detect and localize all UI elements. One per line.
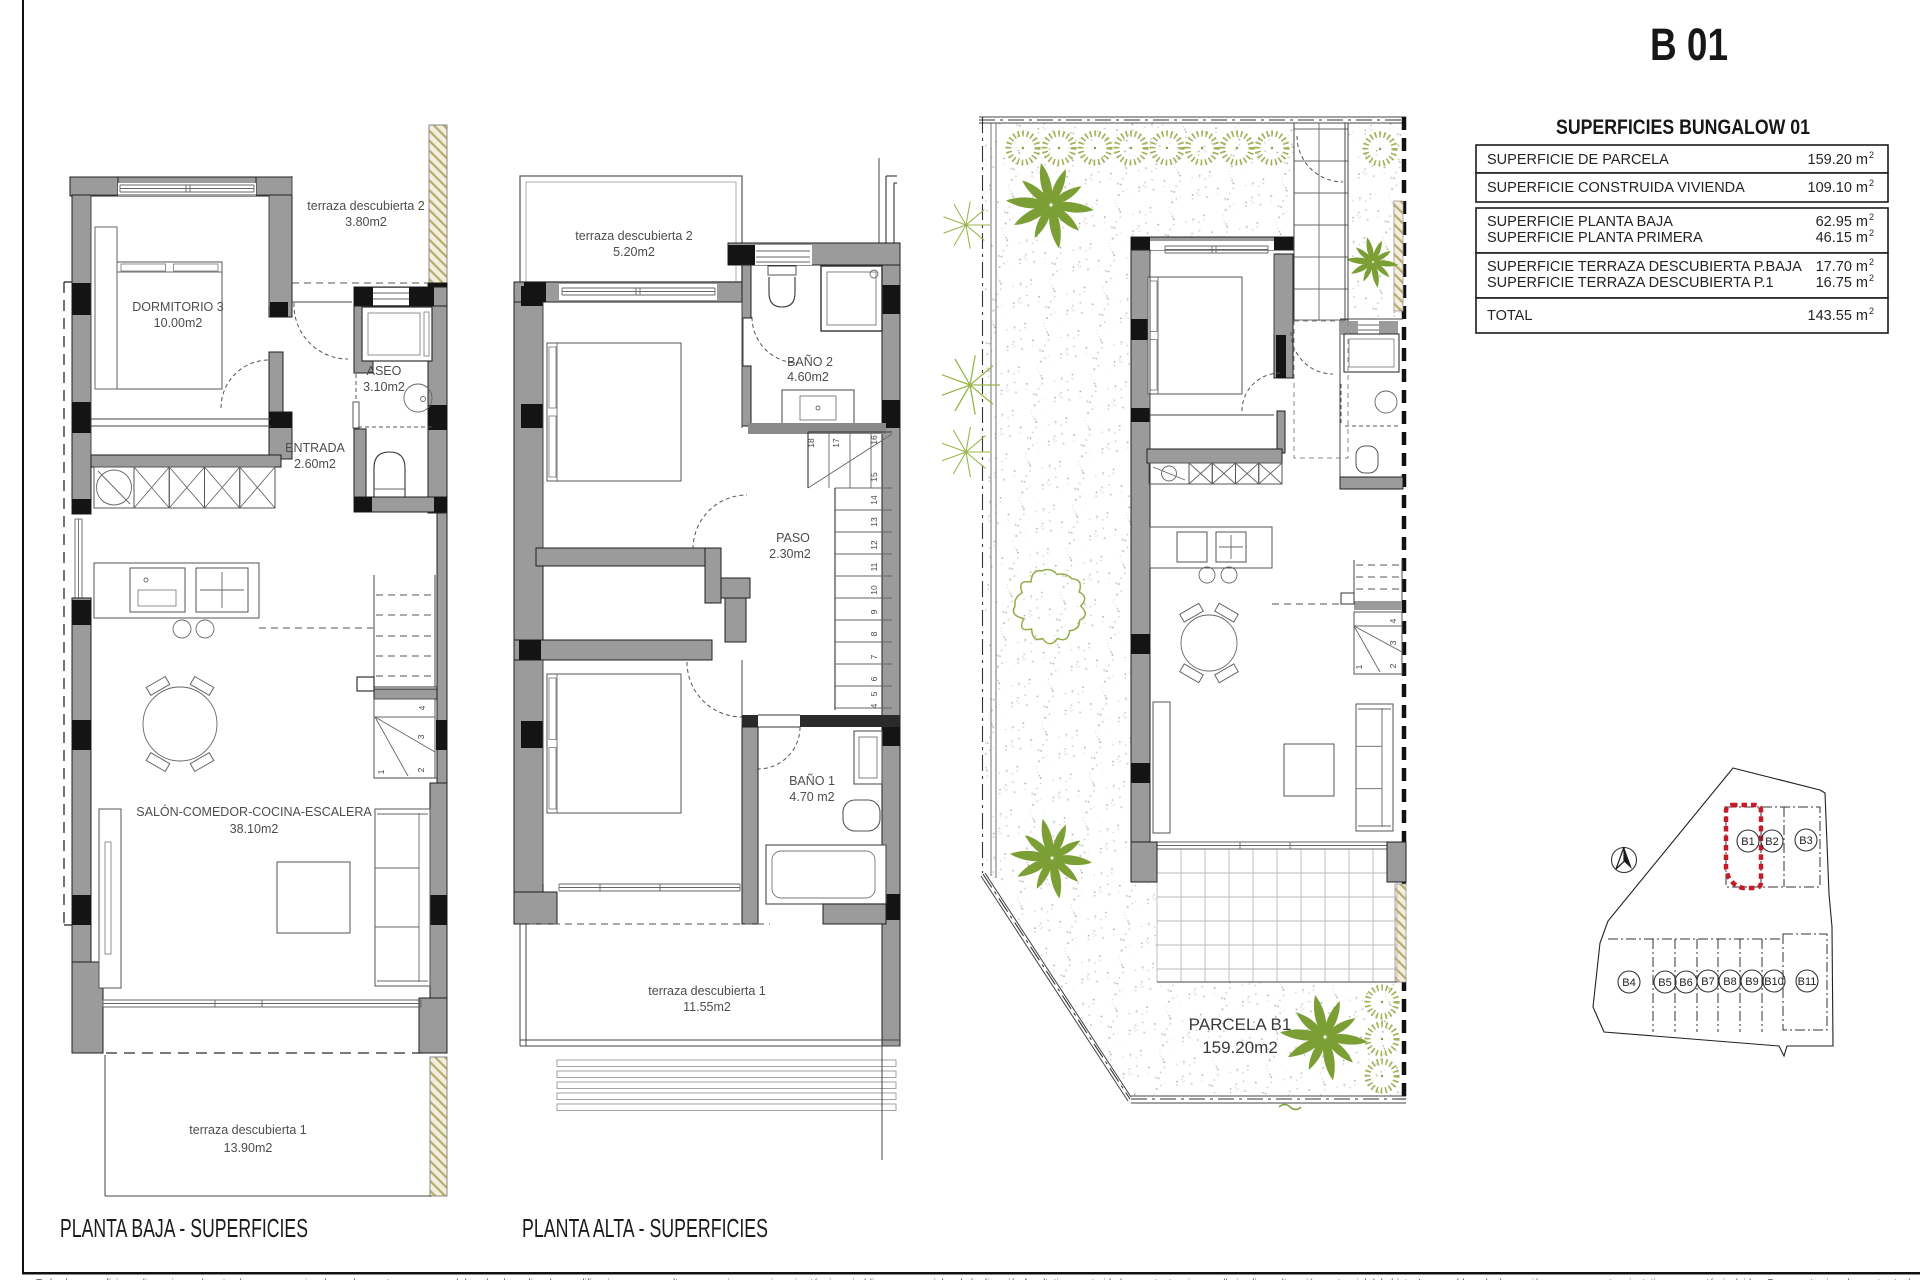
svg-text:13: 13 [869,517,879,527]
svg-text:2.60m2: 2.60m2 [294,457,336,471]
svg-text:terraza descubierta 2: terraza descubierta 2 [575,229,692,243]
svg-text:5.20m2: 5.20m2 [613,245,655,259]
svg-text:DORMITORIO 3: DORMITORIO 3 [132,300,223,314]
svg-text:B10: B10 [1764,976,1784,988]
svg-text:15: 15 [869,472,879,482]
svg-text:PLANTA ALTA - SUPERFICIES: PLANTA ALTA - SUPERFICIES [522,1213,768,1243]
svg-text:PARCELA B1: PARCELA B1 [1189,1015,1292,1034]
svg-text:18: 18 [806,438,816,448]
svg-text:16: 16 [869,435,879,445]
svg-text:2: 2 [1869,273,1874,283]
svg-text:SUPERFICIE CONSTRUIDA VIVIENDA: SUPERFICIE CONSTRUIDA VIVIENDA [1487,180,1745,196]
svg-text:1: 1 [1354,664,1364,669]
svg-text:12: 12 [869,540,879,550]
svg-text:2.30m2: 2.30m2 [769,547,811,561]
svg-text:SUPERFICIE DE PARCELA: SUPERFICIE DE PARCELA [1487,152,1669,168]
svg-text:3.80m2: 3.80m2 [345,215,387,229]
svg-text:62.95 m: 62.95 m [1816,214,1868,230]
svg-text:B11: B11 [1798,976,1817,988]
svg-text:2: 2 [1869,306,1874,316]
svg-text:SUPERFICIE TERRAZA DESCUBIERTA: SUPERFICIE TERRAZA DESCUBIERTA P.BAJA [1487,259,1802,275]
svg-text:8: 8 [869,631,879,636]
svg-text:B8: B8 [1723,976,1736,988]
svg-text:2: 2 [1869,150,1874,160]
svg-text:terraza descubierta 2: terraza descubierta 2 [307,199,424,213]
svg-text:B1: B1 [1741,836,1754,848]
svg-text:3: 3 [1388,640,1398,645]
svg-text:16.75 m: 16.75 m [1816,275,1868,291]
svg-text:159.20 m: 159.20 m [1808,152,1868,168]
svg-text:ASEO: ASEO [367,364,402,378]
svg-text:B3: B3 [1799,835,1812,847]
svg-text:B2: B2 [1765,836,1778,848]
svg-text:46.15 m: 46.15 m [1816,230,1868,246]
svg-text:159.20m2: 159.20m2 [1202,1038,1278,1057]
svg-text:11: 11 [869,562,879,571]
svg-text:1: 1 [376,769,386,774]
svg-text:B 01: B 01 [1650,19,1728,70]
svg-text:6: 6 [869,676,879,681]
svg-text:11.55m2: 11.55m2 [683,1000,731,1014]
svg-text:9: 9 [869,609,879,614]
svg-text:10: 10 [869,585,879,595]
svg-text:TOTAL: TOTAL [1487,308,1532,324]
svg-text:B6: B6 [1679,977,1692,989]
svg-text:B5: B5 [1658,977,1671,989]
svg-text:SUPERFICIES BUNGALOW 01: SUPERFICIES BUNGALOW 01 [1556,116,1810,139]
svg-text:2: 2 [416,767,426,772]
svg-text:109.10 m: 109.10 m [1808,180,1868,196]
svg-text:B9: B9 [1745,976,1758,988]
svg-text:ENTRADA: ENTRADA [285,441,345,455]
svg-text:10.00m2: 10.00m2 [154,316,203,330]
svg-text:4: 4 [417,705,427,710]
svg-text:4.60m2: 4.60m2 [787,370,829,384]
svg-text:7: 7 [869,654,879,659]
svg-text:3: 3 [416,734,426,739]
svg-text:13.90m2: 13.90m2 [224,1141,273,1155]
svg-text:2: 2 [1869,257,1874,267]
svg-text:2: 2 [1388,663,1398,668]
svg-text:B7: B7 [1701,976,1714,988]
svg-text:2: 2 [1869,212,1874,222]
svg-text:38.10m2: 38.10m2 [230,822,279,836]
svg-text:SUPERFICIE TERRAZA DESCUBIERTA: SUPERFICIE TERRAZA DESCUBIERTA P.1 [1487,275,1774,291]
svg-text:SALÓN-COMEDOR-COCINA-ESCALERA: SALÓN-COMEDOR-COCINA-ESCALERA [136,804,372,819]
svg-text:2: 2 [1869,228,1874,238]
svg-text:B4: B4 [1622,977,1635,989]
svg-text:14: 14 [869,495,879,505]
svg-text:3.10m2: 3.10m2 [363,380,405,394]
svg-text:BAÑO 2: BAÑO 2 [787,355,833,369]
svg-text:5: 5 [869,691,879,696]
svg-text:SUPERFICIE PLANTA BAJA: SUPERFICIE PLANTA BAJA [1487,214,1673,230]
svg-text:PASO: PASO [776,531,810,545]
svg-text:2: 2 [1869,178,1874,188]
svg-text:4: 4 [1388,618,1398,623]
svg-text:SUPERFICIE PLANTA PRIMERA: SUPERFICIE PLANTA PRIMERA [1487,230,1703,246]
svg-text:4.70 m2: 4.70 m2 [789,790,834,804]
svg-text:143.55 m: 143.55 m [1808,308,1868,324]
svg-text:4: 4 [869,703,879,708]
svg-text:terraza descubierta 1: terraza descubierta 1 [648,984,765,998]
svg-text:17: 17 [831,438,841,448]
svg-text:BAÑO 1: BAÑO 1 [789,774,835,788]
svg-text:PLANTA BAJA - SUPERFICIES: PLANTA BAJA - SUPERFICIES [60,1213,308,1243]
svg-text:terraza descubierta 1: terraza descubierta 1 [189,1123,306,1137]
svg-text:17.70 m: 17.70 m [1816,259,1868,275]
